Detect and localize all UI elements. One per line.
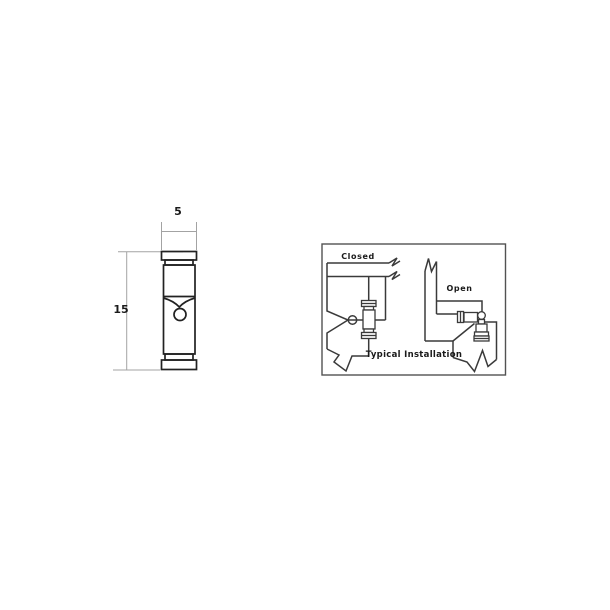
device-sight-hole [174, 309, 186, 321]
device-seat-curve [164, 298, 196, 307]
vent-valve-drawing: 5 15 Closed [0, 0, 610, 610]
device-bottom-cap [162, 360, 197, 370]
pipe-break-icon [327, 349, 369, 371]
device-top-cap [162, 252, 197, 261]
open-label: Open [446, 284, 472, 293]
valve-body [476, 324, 487, 332]
caption-label: Typical Installation [366, 350, 462, 360]
pipe-break-icon [425, 259, 437, 272]
closed-label: Closed [341, 252, 375, 261]
device-front-view [162, 252, 197, 370]
pipe-break-icon [389, 272, 400, 280]
valve-ring [479, 320, 485, 325]
hopper-slope [453, 324, 475, 342]
pipe-break-icon [389, 258, 400, 266]
height-dim-label: 15 [113, 303, 128, 316]
dimension-height: 15 [113, 252, 183, 370]
mini-valve-closed [362, 301, 377, 339]
technical-drawing-canvas: 5 15 Closed [0, 0, 610, 610]
installation-inset: Closed [322, 244, 506, 375]
valve-body [363, 310, 375, 329]
pivot-circle [478, 312, 486, 320]
dimension-width: 5 [162, 205, 197, 250]
mini-valve-open [458, 312, 490, 342]
device-body [164, 265, 196, 354]
valve-body [464, 313, 478, 323]
width-dim-label: 5 [174, 205, 182, 218]
device-bottom-ring [165, 354, 193, 360]
branch-top-edge [437, 301, 483, 312]
